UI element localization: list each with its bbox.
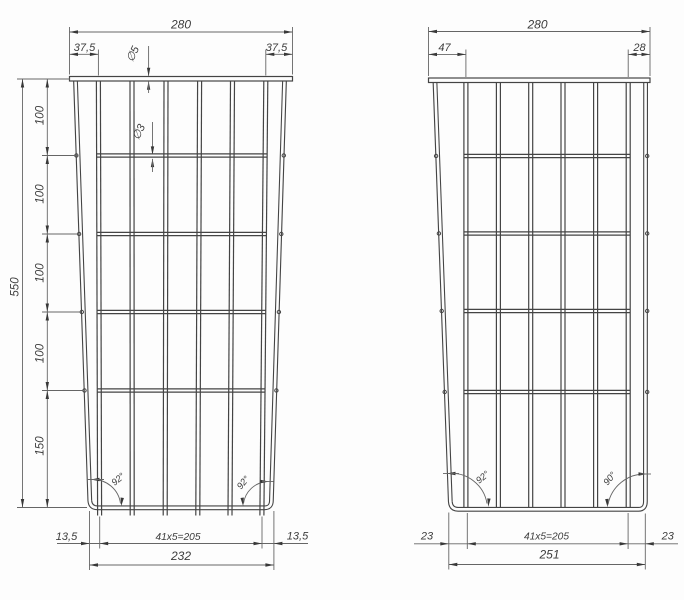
svg-text:100: 100: [35, 184, 47, 204]
svg-text:13,5: 13,5: [56, 531, 78, 543]
svg-text:232: 232: [170, 549, 191, 563]
svg-text:23: 23: [420, 531, 434, 543]
svg-text:550: 550: [10, 277, 22, 297]
svg-text:41х5=205: 41х5=205: [524, 532, 569, 543]
svg-text:280: 280: [526, 18, 547, 32]
svg-text:28: 28: [632, 42, 646, 54]
svg-text:37,5: 37,5: [266, 42, 288, 54]
svg-text:47: 47: [438, 42, 451, 54]
svg-text:150: 150: [35, 436, 47, 456]
svg-text:100: 100: [35, 105, 47, 125]
svg-text:23: 23: [661, 531, 675, 543]
svg-text:37,5: 37,5: [74, 42, 96, 54]
svg-text:13,5: 13,5: [287, 531, 309, 543]
svg-text:251: 251: [538, 548, 559, 562]
svg-text:280: 280: [170, 18, 191, 32]
svg-text:41х5=205: 41х5=205: [155, 532, 200, 543]
svg-text:100: 100: [35, 263, 47, 283]
svg-text:100: 100: [35, 343, 47, 363]
